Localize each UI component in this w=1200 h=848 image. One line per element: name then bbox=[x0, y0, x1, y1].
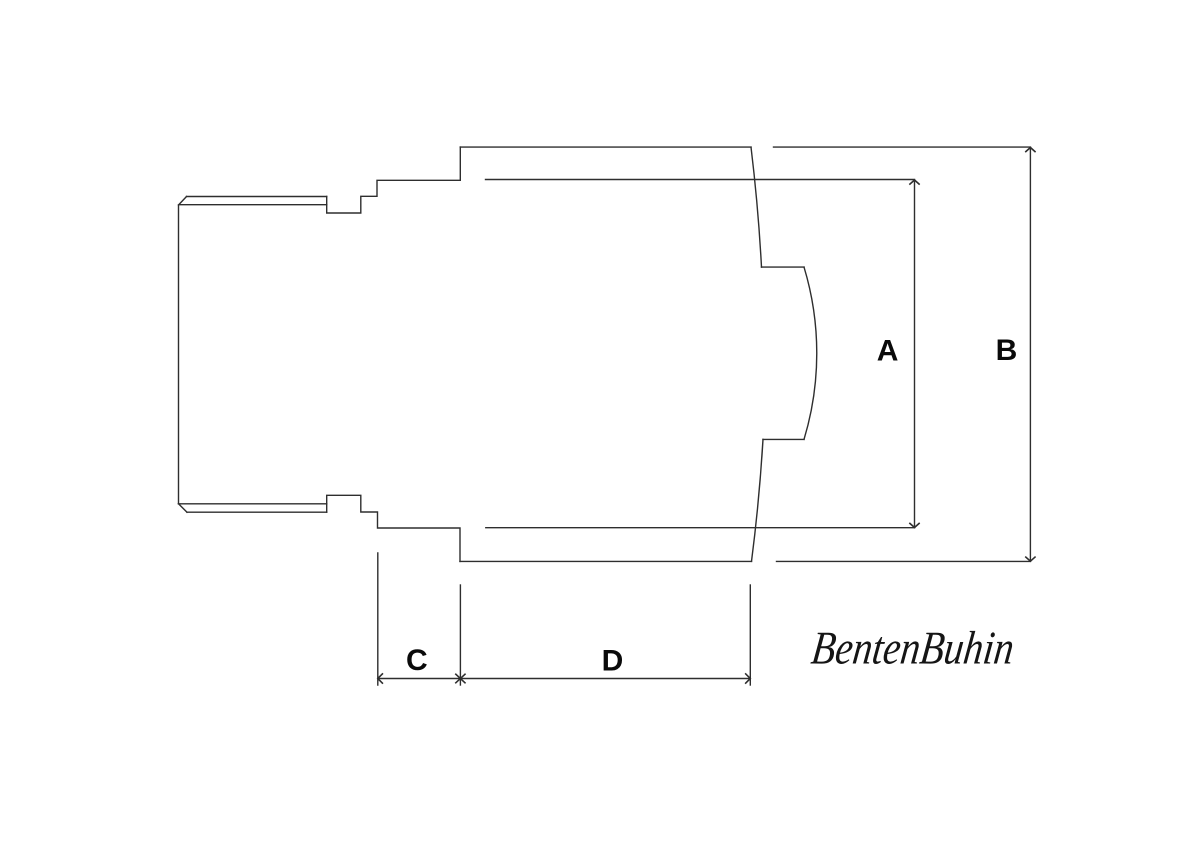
svg-text:BentenBuhin: BentenBuhin bbox=[809, 623, 1017, 675]
svg-text:A: A bbox=[877, 334, 899, 367]
svg-text:D: D bbox=[602, 645, 624, 678]
svg-text:B: B bbox=[996, 334, 1018, 367]
svg-text:C: C bbox=[406, 644, 428, 677]
